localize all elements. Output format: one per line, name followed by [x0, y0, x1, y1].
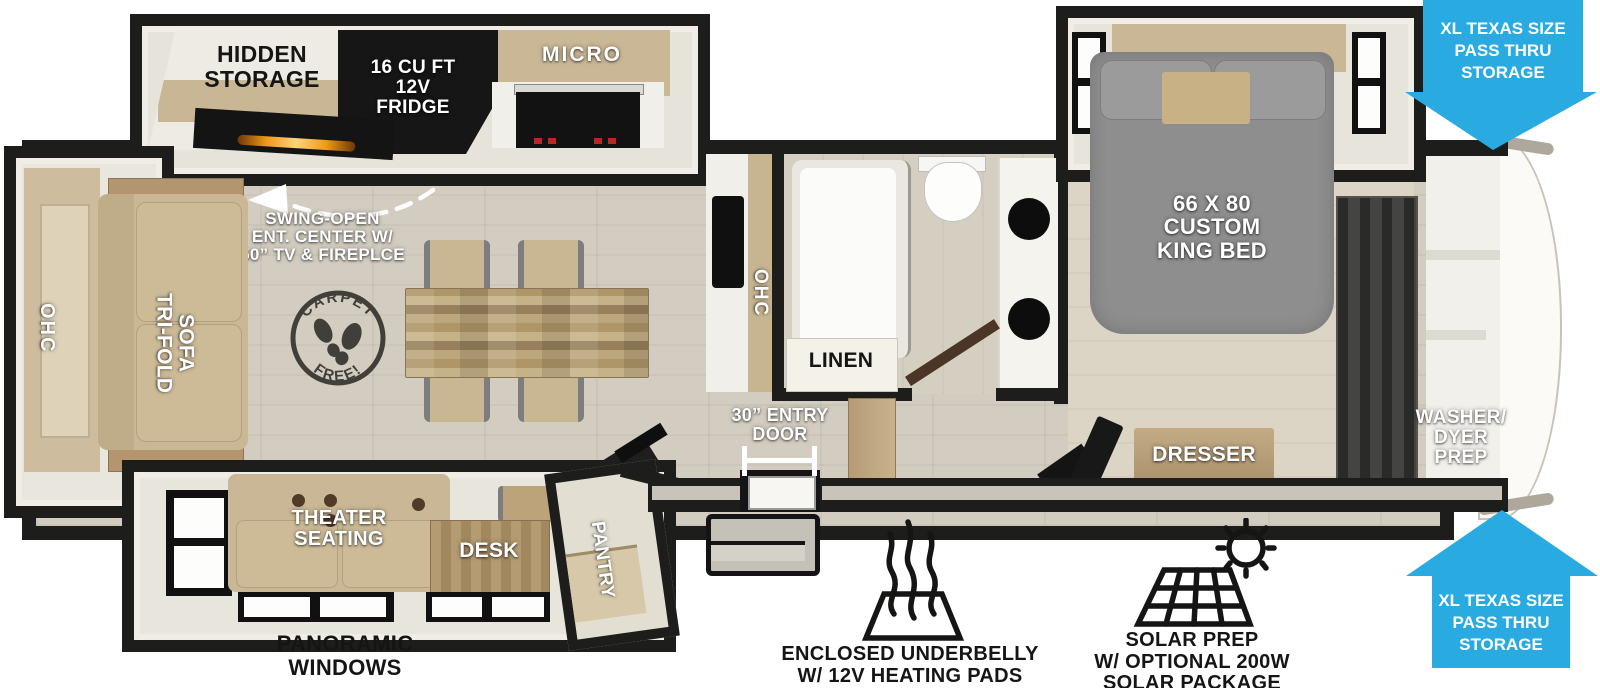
fridge-label: 16 CU FT 12V FRIDGE [348, 58, 478, 118]
dining-chair [518, 240, 584, 292]
solar-prep-icon [1130, 518, 1286, 632]
entry-door-label: 30” ENTRY DOOR [700, 406, 860, 444]
theater-seating-label: THEATER SEATING [248, 508, 430, 550]
stove-burner-light [594, 138, 602, 144]
theater-cupholder [324, 494, 337, 507]
rv-floorplan-diagram: HIDDEN STORAGE 16 CU FT 12V FRIDGE MICRO… [0, 0, 1600, 688]
bathroom-left-wall [772, 146, 784, 400]
svg-text:PASS THRU: PASS THRU [1453, 613, 1550, 632]
tri-fold-sofa-label: TRI-FOLD SOFA [152, 258, 197, 428]
entry-door-dimension-bar [744, 458, 816, 463]
svg-text:FREE!: FREE! [311, 361, 366, 386]
vanity-sink [1008, 198, 1050, 240]
front-steps-ledge [1426, 250, 1500, 260]
bed-throw-blanket [1162, 72, 1250, 124]
linen-label: LINEN [786, 350, 896, 373]
rear-ohc-label: OHC [36, 268, 57, 388]
panoramic-window [426, 592, 550, 622]
washer-dryer-prep-label: WASHER/ DYER PREP [1396, 408, 1526, 468]
toilet-bowl [924, 162, 982, 222]
stove-burner-light [548, 138, 556, 144]
bathtub [792, 160, 911, 358]
bathroom-bottom-wall-right [996, 388, 1068, 401]
front-steps-ledge [1426, 330, 1486, 340]
king-bed-label: 66 X 80 CUSTOM KING BED [1100, 192, 1324, 262]
dining-table [405, 288, 649, 378]
stove-burner-light [608, 138, 616, 144]
kitchen-sink [712, 196, 744, 288]
dresser-label: DRESSER [1134, 444, 1274, 466]
svg-text:XL TEXAS SIZE: XL TEXAS SIZE [1440, 19, 1565, 38]
micro-label: MICRO [502, 44, 662, 66]
solar-prep-label: SOLAR PREP W/ OPTIONAL 200W SOLAR PACKAG… [1042, 630, 1342, 688]
svg-text:PASS THRU: PASS THRU [1455, 41, 1552, 60]
bedroom-window-right [1352, 32, 1386, 134]
hidden-storage-label: HIDDEN STORAGE [182, 42, 342, 92]
theater-cupholder [292, 494, 305, 507]
underbelly-label: ENCLOSED UNDERBELLY W/ 12V HEATING PADS [760, 644, 1060, 687]
vanity-sink [1008, 298, 1050, 340]
svg-text:STORAGE: STORAGE [1459, 635, 1543, 654]
dining-chair [424, 240, 490, 292]
bottom-wall-ledge [652, 486, 740, 500]
bathroom-vanity [998, 158, 1058, 388]
entry-step-lower [711, 545, 805, 561]
carpet-free-badge: CARPET FREE! [286, 286, 390, 390]
panoramic-windows-label: PANORAMIC WINDOWS [230, 632, 460, 680]
svg-text:XL TEXAS SIZE: XL TEXAS SIZE [1438, 591, 1563, 610]
heating-pads-icon [848, 514, 970, 642]
entry-door-panel [748, 476, 816, 510]
panoramic-window [238, 592, 394, 622]
entry-steps [706, 514, 820, 576]
slide-end-window [166, 490, 232, 596]
pass-thru-arrow-top: XL TEXAS SIZE PASS THRU STORAGE [1400, 0, 1600, 152]
bottom-wall-ledge [822, 486, 1502, 500]
svg-text:STORAGE: STORAGE [1461, 63, 1545, 82]
desk-label: DESK [430, 540, 548, 562]
sofa-back [98, 194, 134, 450]
kitchen-ohc-label: OHC [750, 238, 770, 348]
pass-thru-arrow-bottom: XL TEXAS SIZE PASS THRU STORAGE [1398, 506, 1600, 672]
bathtub-basin [800, 168, 896, 348]
stove-burner-light [534, 138, 542, 144]
